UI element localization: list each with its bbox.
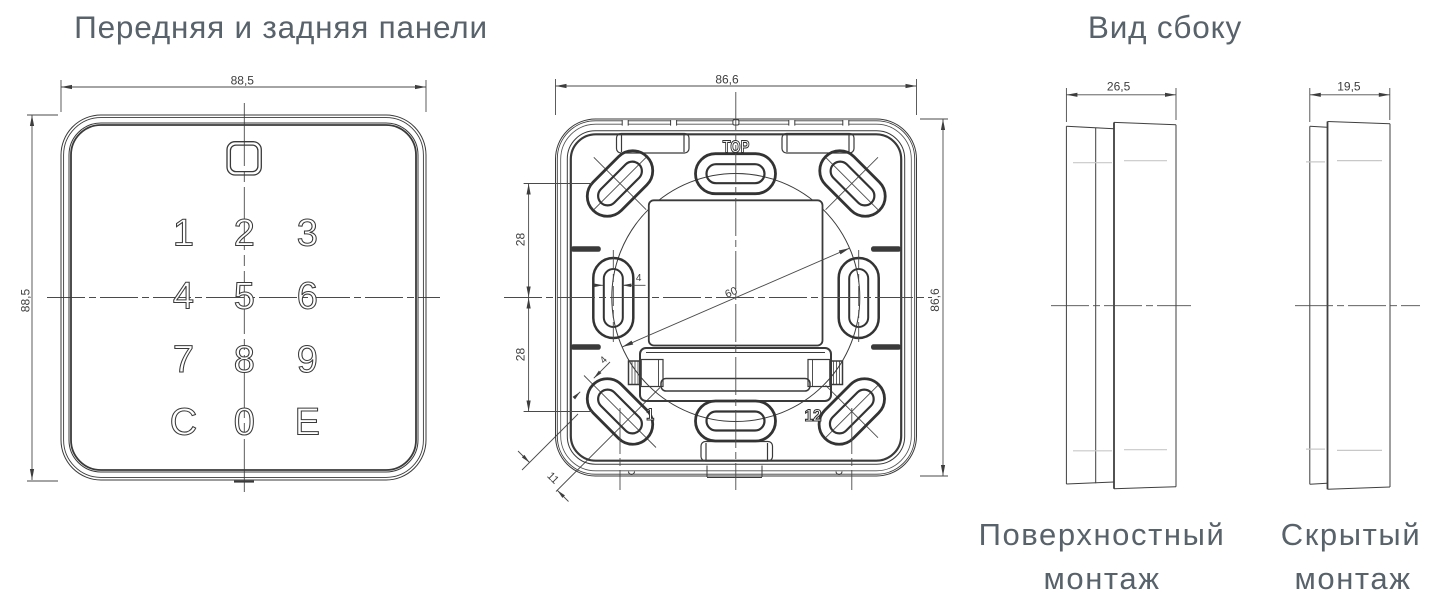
svg-text:9: 9 — [297, 339, 318, 381]
svg-text:4: 4 — [598, 354, 610, 366]
svg-text:2: 2 — [234, 213, 255, 255]
svg-text:1: 1 — [646, 406, 654, 424]
svg-text:0: 0 — [234, 402, 255, 444]
svg-text:28: 28 — [514, 233, 528, 247]
svg-text:Передняя и задняя панели: Передняя и задняя панели — [74, 9, 488, 45]
svg-text:3: 3 — [297, 213, 318, 255]
svg-text:TOP: TOP — [723, 138, 750, 157]
svg-text:Поверхностный: Поверхностный — [979, 517, 1226, 552]
svg-text:Скрытый: Скрытый — [1281, 517, 1421, 552]
svg-text:88,5: 88,5 — [19, 288, 33, 312]
svg-text:4: 4 — [636, 273, 642, 284]
svg-text:4: 4 — [173, 276, 194, 318]
svg-text:7: 7 — [173, 339, 194, 381]
svg-text:12: 12 — [804, 406, 821, 425]
svg-text:19,5: 19,5 — [1337, 80, 1361, 94]
svg-text:86,6: 86,6 — [928, 288, 942, 312]
svg-text:88,5: 88,5 — [231, 74, 255, 88]
svg-text:26,5: 26,5 — [1107, 80, 1131, 94]
svg-text:C: C — [170, 402, 197, 444]
svg-text:монтаж: монтаж — [1294, 561, 1411, 596]
svg-text:5: 5 — [234, 276, 255, 318]
svg-text:E: E — [295, 402, 320, 444]
svg-text:1: 1 — [173, 213, 194, 255]
svg-text:монтаж: монтаж — [1043, 561, 1160, 596]
svg-text:11: 11 — [544, 470, 561, 487]
svg-text:8: 8 — [234, 339, 255, 381]
svg-text:6: 6 — [297, 276, 318, 318]
svg-text:Вид сбоку: Вид сбоку — [1088, 9, 1242, 45]
svg-text:28: 28 — [514, 348, 528, 362]
svg-text:86,6: 86,6 — [715, 73, 739, 87]
